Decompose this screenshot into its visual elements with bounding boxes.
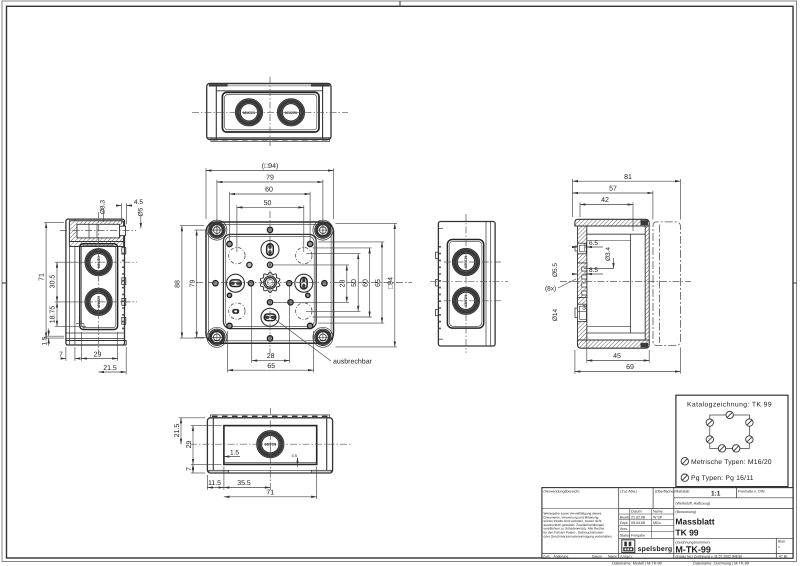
svg-text:Massblatt: Massblatt <box>675 517 714 527</box>
svg-text:Datum: Datum <box>592 554 602 558</box>
svg-text:Freigabe: Freigabe <box>631 534 645 538</box>
svg-text:Änderung: Änderung <box>554 554 569 558</box>
svg-text:21.5: 21.5 <box>174 424 181 438</box>
svg-text:1: 1 <box>78 317 82 324</box>
svg-text:69: 69 <box>626 364 634 371</box>
svg-text:88: 88 <box>175 280 182 288</box>
svg-text:Datum: Datum <box>631 510 642 514</box>
svg-text:□94: □94 <box>388 277 395 289</box>
svg-text:65: 65 <box>375 279 382 287</box>
svg-text:4.5: 4.5 <box>292 453 298 458</box>
svg-text:50: 50 <box>264 200 272 207</box>
svg-text:8.5: 8.5 <box>589 267 598 274</box>
svg-text:Vers.: Vers. <box>620 527 628 531</box>
svg-text:Name: Name <box>653 510 663 514</box>
svg-text:28: 28 <box>267 353 275 360</box>
svg-text:M16/20: M16/20 <box>243 111 255 115</box>
svg-text:21.02.08: 21.02.08 <box>631 515 645 519</box>
svg-text:1.5: 1.5 <box>42 336 49 345</box>
svg-text:81: 81 <box>624 174 632 181</box>
svg-text:Katalogzeichnung: TK 99: Katalogzeichnung: TK 99 <box>687 402 772 409</box>
svg-text:Ø5.5: Ø5.5 <box>552 263 559 277</box>
svg-text:(Benennung): (Benennung) <box>675 510 696 514</box>
svg-text:Blatt: Blatt <box>778 539 785 543</box>
svg-text:7: 7 <box>186 467 193 471</box>
svg-text:1.5: 1.5 <box>230 450 239 457</box>
svg-text:(Oberfläche): (Oberfläche) <box>655 489 675 493</box>
svg-text:(□94): (□94) <box>262 162 279 170</box>
svg-text:57: 57 <box>609 186 617 193</box>
svg-text:Gepr.: Gepr. <box>620 521 629 525</box>
svg-text:Pg Typen: Pg 16/11: Pg Typen: Pg 16/11 <box>691 475 754 482</box>
svg-text:18.75: 18.75 <box>50 306 57 324</box>
svg-text:ausbrechbar: ausbrechbar <box>333 358 373 366</box>
svg-text:60: 60 <box>362 279 369 287</box>
svg-text:(Urspr.): (Urspr.) <box>620 554 631 558</box>
svg-text:1: 1 <box>778 545 780 549</box>
svg-text:(Zul. Abw.): (Zul. Abw.) <box>620 489 637 493</box>
svg-text:35.5: 35.5 <box>237 480 251 487</box>
svg-text:Ø14: Ø14 <box>552 308 559 321</box>
svg-text:6.5: 6.5 <box>589 240 598 247</box>
svg-text:Ø8.3: Ø8.3 <box>99 200 106 214</box>
svg-text:(Werkstoff, Halbzeug): (Werkstoff, Halbzeug) <box>675 502 710 506</box>
svg-text:spelsberg: spelsberg <box>638 545 673 553</box>
svg-text:TK 99: TK 99 <box>675 528 698 538</box>
svg-text:29: 29 <box>186 441 193 449</box>
svg-text:21.5: 21.5 <box>103 365 117 372</box>
svg-text:11.5: 11.5 <box>208 480 221 487</box>
svg-text:60: 60 <box>265 187 273 194</box>
svg-text:3: 3 <box>582 305 586 312</box>
svg-text:Freimaße n. DIN: Freimaße n. DIN <box>738 489 765 493</box>
svg-text:1:1: 1:1 <box>711 491 721 498</box>
svg-text:30.5: 30.5 <box>50 275 57 289</box>
svg-text:Dateiname: Modell | M-TK-99: Dateiname: Modell | M-TK-99 <box>612 561 662 565</box>
svg-text:45: 45 <box>613 353 621 360</box>
svg-text:Status: Status <box>620 534 630 538</box>
svg-text:(8x): (8x) <box>545 286 556 293</box>
svg-text:Maßstab: Maßstab <box>675 489 689 493</box>
svg-text:Zust.: Zust. <box>543 554 551 558</box>
svg-text:47 Bl.: 47 Bl. <box>779 554 788 558</box>
svg-text:Ø5: Ø5 <box>138 207 145 216</box>
svg-text:50: 50 <box>351 279 358 287</box>
svg-text:(Verwendungsbereich): (Verwendungsbereich) <box>544 489 580 493</box>
svg-text:MGu: MGu <box>653 521 661 525</box>
svg-text:42: 42 <box>601 197 609 204</box>
svg-text:65: 65 <box>267 363 275 370</box>
svg-text:7: 7 <box>59 352 63 359</box>
svg-text:Metrische Typen: M16/20: Metrische Typen: M16/20 <box>691 459 772 466</box>
svg-text:Name: Name <box>608 554 617 558</box>
svg-text:M-TK-99: M-TK-99 <box>675 545 711 555</box>
svg-text:oder Geschmacksmustereintragun: oder Geschmacksmustereintragung vorbehal… <box>544 534 613 538</box>
svg-text:Ø3.4: Ø3.4 <box>605 247 612 261</box>
svg-text:Bearb.: Bearb. <box>620 515 631 519</box>
svg-text:79: 79 <box>266 175 274 182</box>
svg-text:M16/20: M16/20 <box>285 111 297 115</box>
svg-text:71: 71 <box>266 489 274 496</box>
svg-text:71: 71 <box>39 273 46 281</box>
svg-text:(Ersatz für:) Zeichnung v. 11: (Ersatz für:) Zeichnung v. 11.07.2002 (M… <box>675 554 742 558</box>
svg-text:09.04.08: 09.04.08 <box>631 521 645 525</box>
svg-text:28: 28 <box>340 280 347 288</box>
svg-text:Dateiname: Zeichnung | M-TK-99: Dateiname: Zeichnung | M-TK-99 <box>693 561 749 565</box>
svg-text:4.5: 4.5 <box>134 199 143 206</box>
svg-text:W SP: W SP <box>653 515 663 519</box>
svg-text:79: 79 <box>189 280 196 288</box>
svg-text:29: 29 <box>94 352 102 359</box>
